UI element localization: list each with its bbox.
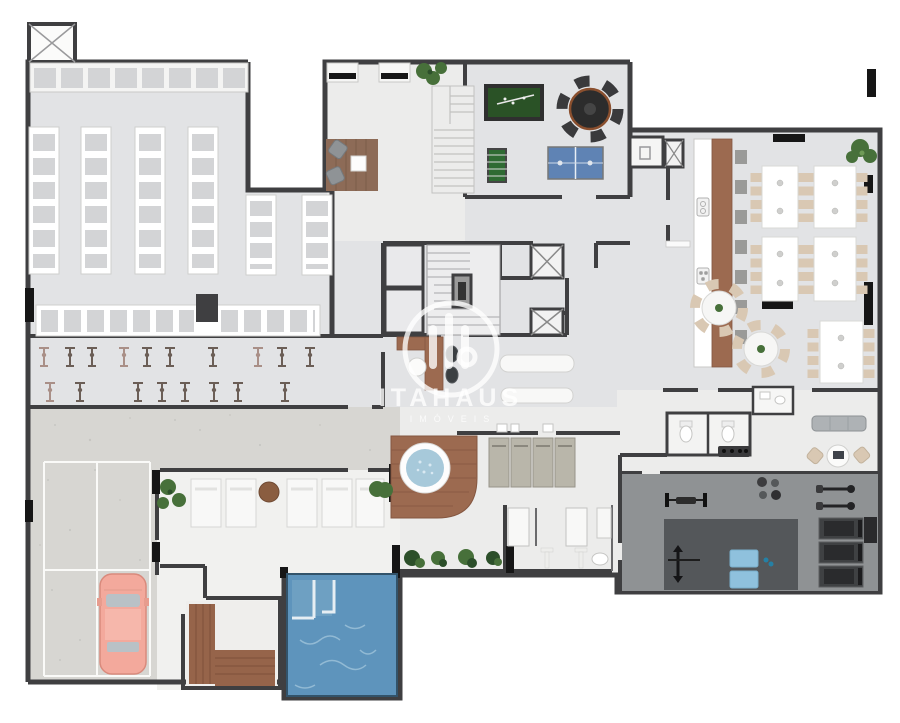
- spa-toilet: [592, 553, 608, 565]
- weights-rack: [718, 446, 750, 457]
- foosball-table: [486, 149, 508, 182]
- bar-stool-2: [446, 367, 458, 383]
- restaurant-window-bar-mid: [762, 301, 793, 309]
- lounge-coffee-table: [351, 156, 366, 171]
- corner-sofa: [812, 416, 866, 431]
- left-wall-column-1: [25, 288, 34, 322]
- elevator-2: [385, 289, 423, 333]
- gym-cabinet: [864, 517, 877, 543]
- fitness-floor: [28, 336, 383, 407]
- shower-sink: [597, 508, 611, 538]
- corner-plant: [377, 482, 393, 498]
- pantry-room: [630, 137, 663, 167]
- deck-post-1: [152, 470, 160, 494]
- structural-column: [196, 294, 218, 322]
- shaft-x-3: [665, 140, 683, 167]
- toilet-1: [680, 426, 692, 442]
- shaft-x-2: [531, 309, 563, 335]
- sauna: [186, 601, 277, 686]
- pool: [287, 574, 397, 696]
- table-tennis-table: [548, 147, 603, 179]
- watermark-subtitle: IMÓVEIS: [410, 414, 497, 424]
- planter-post-2: [506, 546, 514, 573]
- deck-side-table: [259, 482, 279, 502]
- sauna-bench-horizontal: [215, 650, 275, 686]
- service-vestibule: [753, 387, 793, 414]
- sauna-bench-vertical: [189, 604, 215, 684]
- elevator-1: [385, 245, 423, 287]
- car: [97, 574, 149, 674]
- restaurant-window-bar-top: [773, 134, 805, 142]
- deck-post-2: [152, 542, 160, 562]
- corridor-door: [666, 241, 690, 247]
- ventilation-shaft-topleft: [29, 24, 75, 62]
- watermark-brand: ITAHAUS: [379, 384, 523, 412]
- floor-plan-image: ITAHAUS IMÓVEIS: [0, 0, 900, 723]
- exterior-pilaster: [867, 69, 876, 97]
- jacuzzi-water: [406, 449, 444, 487]
- treadmills: [819, 518, 863, 587]
- massage-table-1: [500, 355, 574, 372]
- left-wall-column-2: [25, 500, 33, 522]
- laptop: [833, 451, 844, 459]
- shaft-x-1: [531, 245, 563, 278]
- lounge-staircase: [432, 86, 474, 193]
- toilet-2: [722, 426, 734, 442]
- billiard-table: [486, 86, 542, 119]
